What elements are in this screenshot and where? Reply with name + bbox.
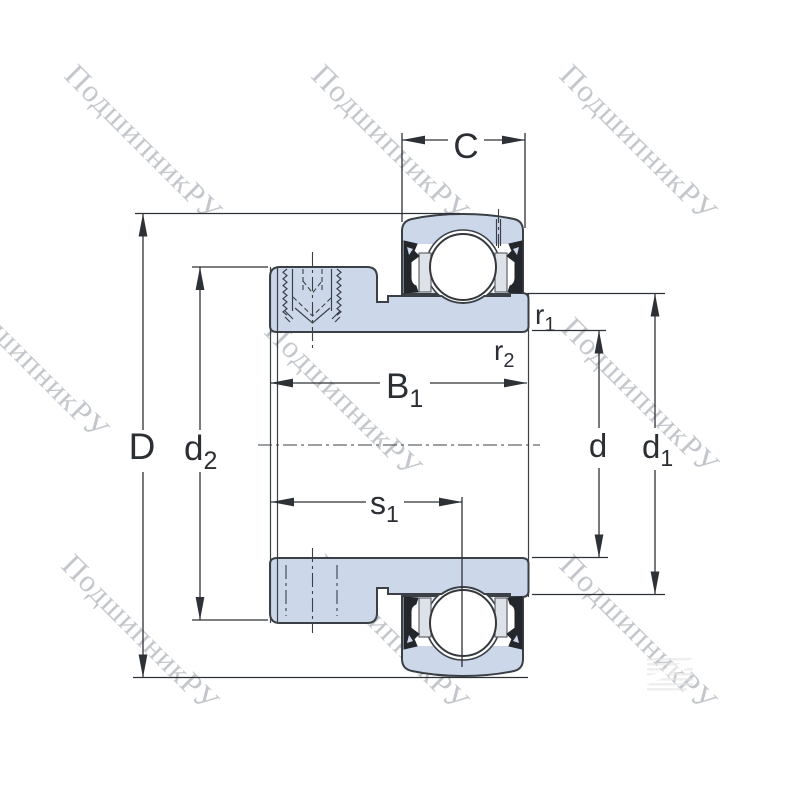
bearing-technical-drawing: ПодшипникРУ ПодшипникРУ ПодшипникРУ Подш…: [0, 0, 800, 800]
dim-label-c: C: [453, 127, 478, 166]
dim-label-D: D: [129, 426, 156, 467]
dim-label-d: d: [589, 427, 607, 464]
bearing-drawing-page: ПодшипникРУ ПодшипникРУ ПодшипникРУ Подш…: [0, 0, 800, 800]
ball-top: [430, 234, 496, 300]
ball-bottom: [430, 590, 496, 656]
